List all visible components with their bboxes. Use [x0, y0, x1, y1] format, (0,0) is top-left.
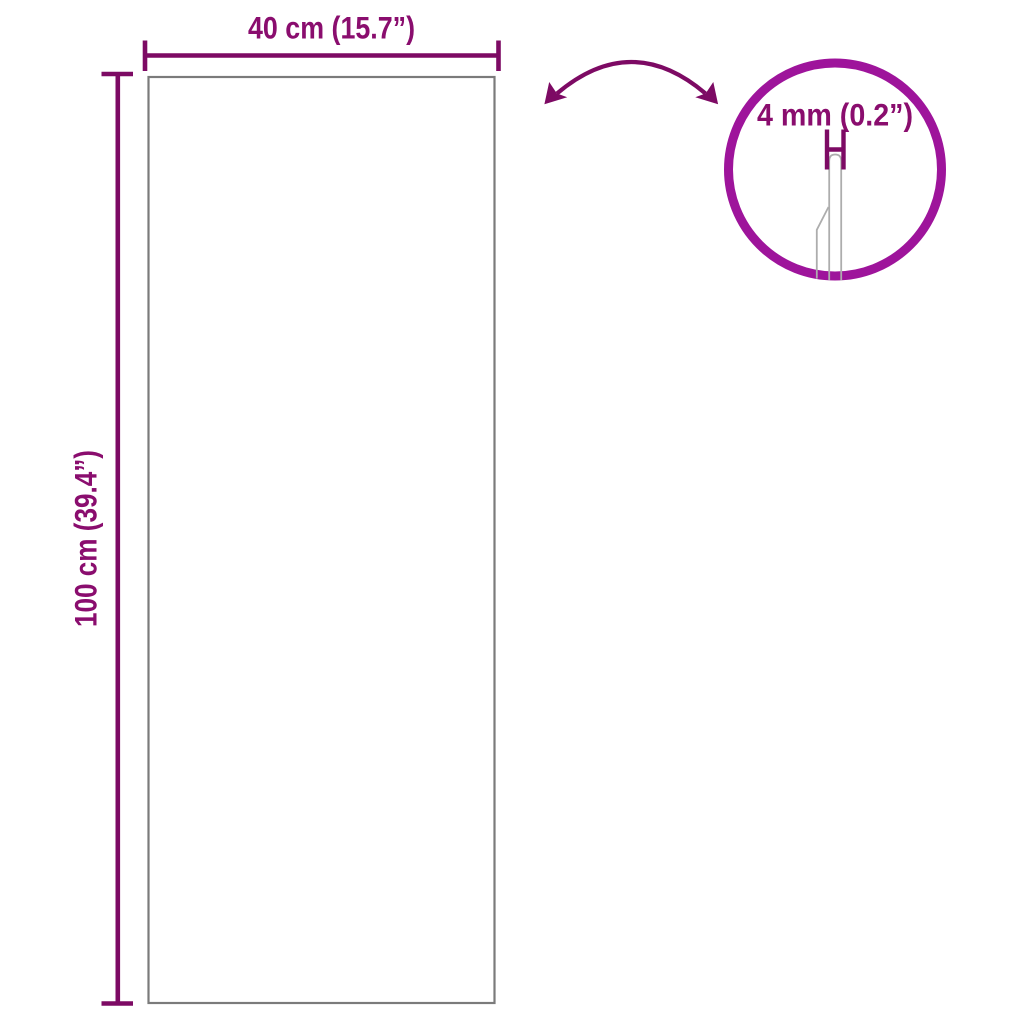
svg-text:40 cm (15.7”): 40 cm (15.7”) — [248, 10, 415, 46]
svg-text:4 mm (0.2”): 4 mm (0.2”) — [757, 97, 913, 133]
svg-text:100 cm (39.4”): 100 cm (39.4”) — [68, 450, 104, 627]
